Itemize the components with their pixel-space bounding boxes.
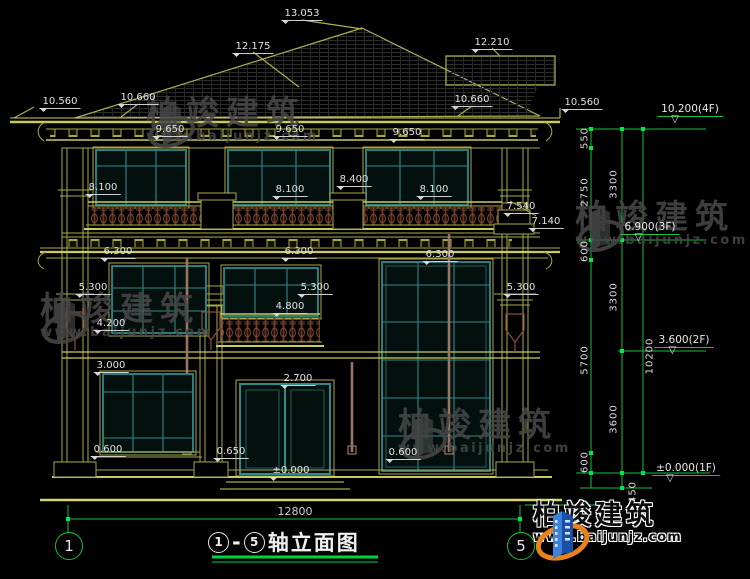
dimension-label: 3.000 xyxy=(94,360,129,373)
level-marker-label: 6.900(3F) xyxy=(621,221,680,235)
dimension-label: 6.300 xyxy=(423,249,458,262)
drawing-title: 1 - 5 轴立面图 xyxy=(208,527,360,557)
dimension-label: 13.053 xyxy=(282,8,323,21)
dimension-label: 7.140 xyxy=(529,216,564,229)
level-marker-label: ±0.000(1F) xyxy=(652,462,720,476)
brand-logo-icon xyxy=(533,502,591,568)
dimension-label: 8.100 xyxy=(273,184,308,197)
cad-elevation-canvas: 柏竣建筑www.baijunjz.com柏竣建筑www.baijunjz.com… xyxy=(0,0,750,579)
chain-dimension-label: 5700 xyxy=(580,345,591,374)
chain-dimension-label: 10200 xyxy=(645,338,656,375)
chain-dimension-label: 2750 xyxy=(580,177,591,206)
chain-dimension-label: 3300 xyxy=(609,169,620,198)
dimension-label: 9.650 xyxy=(273,124,308,137)
dimension-label: 0.600 xyxy=(91,444,126,457)
dimension-label: 4.800 xyxy=(273,301,308,314)
dimension-label: ±0.000 xyxy=(269,465,312,478)
dimension-label: 8.100 xyxy=(86,182,121,195)
brand-logo: 柏竣建筑 www.baijunjz.com xyxy=(533,502,682,545)
axis-bubble-1: 1 xyxy=(55,532,83,560)
chain-dimension-label: 600 xyxy=(580,451,591,473)
chain-dimension-label: 600 xyxy=(580,240,591,262)
dimension-label: 10.660 xyxy=(118,92,159,105)
chain-dimension-label: 3300 xyxy=(609,282,620,311)
dimension-label: 10.660 xyxy=(452,94,493,107)
chain-dimension-label: 3600 xyxy=(609,404,620,433)
dimension-label: 12.175 xyxy=(233,41,274,54)
chain-dimension-label: 550 xyxy=(580,127,591,149)
dimension-label: 5.300 xyxy=(76,282,111,295)
title-axis-right-bubble: 5 xyxy=(244,532,265,553)
title-axis-left-bubble: 1 xyxy=(208,532,229,553)
dimension-label: 8.100 xyxy=(417,184,452,197)
dimension-label: 5.300 xyxy=(504,282,539,295)
title-dash: - xyxy=(232,530,241,554)
level-marker-label: 10.200(4F) xyxy=(657,103,723,117)
dimension-label: 7.540 xyxy=(504,201,539,214)
dimension-label: 4.200 xyxy=(94,318,129,331)
dimension-label: 2.700 xyxy=(281,373,316,386)
dimension-label: 0.600 xyxy=(386,447,421,460)
dimension-label: 8.400 xyxy=(337,174,372,187)
level-marker-label: 3.600(2F) xyxy=(655,334,714,348)
dimension-label: 9.650 xyxy=(153,124,188,137)
title-text: 轴立面图 xyxy=(268,527,360,557)
dimension-label-layer: 13.05312.17512.21010.56010.66010.66010.5… xyxy=(0,0,750,579)
dimension-label: 9.650 xyxy=(390,127,425,140)
dimension-label: 6.300 xyxy=(101,246,136,259)
dimension-label: 0.650 xyxy=(214,446,249,459)
dimension-label: 12.210 xyxy=(472,37,513,50)
dimension-label: 5.300 xyxy=(298,282,333,295)
dimension-label: 6.300 xyxy=(282,246,317,259)
axis-bubble-5: 5 xyxy=(507,532,535,560)
dimension-label: 10.560 xyxy=(562,97,603,110)
dimension-label: 10.560 xyxy=(40,96,81,109)
